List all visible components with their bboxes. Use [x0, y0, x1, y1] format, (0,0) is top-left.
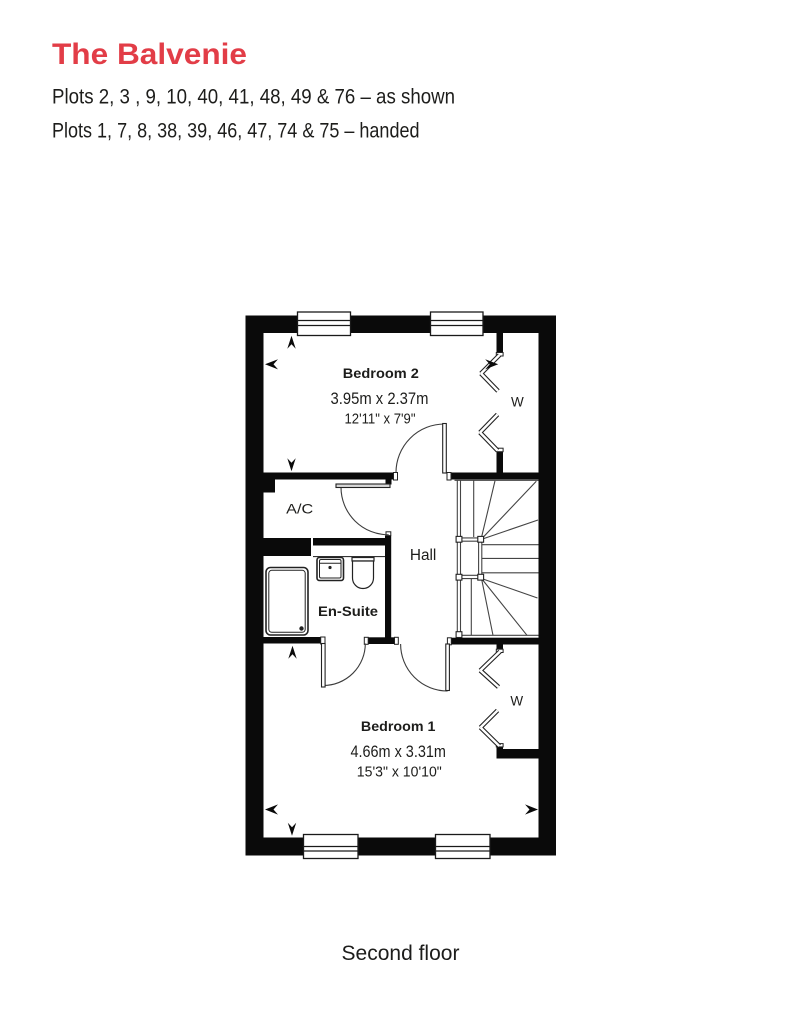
svg-text:Bedroom 1: Bedroom 1	[361, 718, 436, 734]
svg-text:W: W	[511, 395, 524, 410]
svg-text:4.66m x 3.31m: 4.66m x 3.31m	[350, 742, 446, 761]
svg-text:3.95m x 2.37m: 3.95m x 2.37m	[331, 389, 429, 408]
svg-text:Plots 1, 7, 8, 38, 39, 46, 47,: Plots 1, 7, 8, 38, 39, 46, 47, 74 & 75 –…	[52, 119, 420, 143]
svg-text:The Balvenie: The Balvenie	[52, 38, 247, 71]
svg-text:Hall: Hall	[410, 547, 437, 564]
svg-text:A/C: A/C	[286, 501, 313, 517]
svg-text:Plots 2, 3 , 9, 10, 40, 41, 48: Plots 2, 3 , 9, 10, 40, 41, 48, 49 & 76 …	[52, 85, 455, 109]
svg-text:W: W	[510, 694, 523, 709]
svg-text:15'3" x 10'10": 15'3" x 10'10"	[357, 764, 442, 780]
svg-text:Second floor: Second floor	[342, 942, 460, 965]
svg-text:En-Suite: En-Suite	[318, 603, 378, 619]
svg-text:Bedroom 2: Bedroom 2	[343, 365, 419, 381]
svg-text:12'11" x 7'9": 12'11" x 7'9"	[345, 411, 416, 427]
